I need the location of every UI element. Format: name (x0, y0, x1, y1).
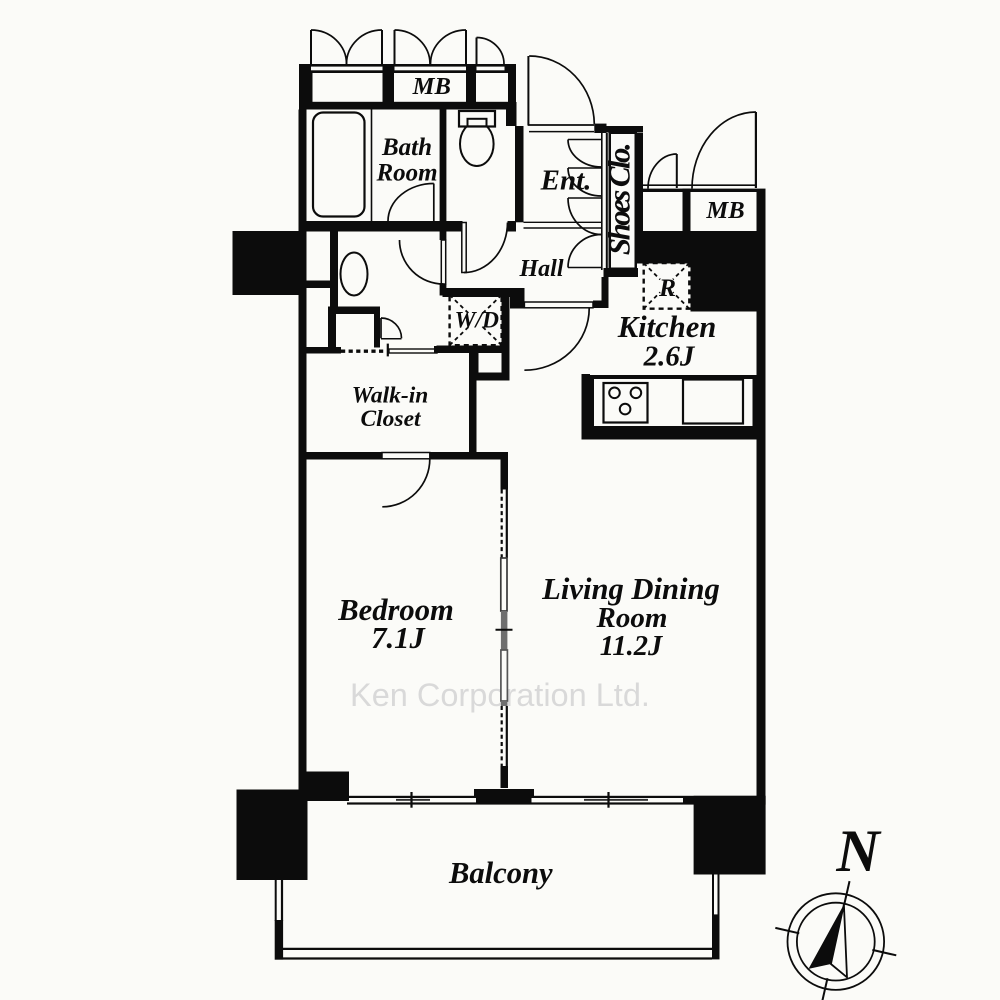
svg-text:Kitchen: Kitchen (617, 310, 717, 344)
svg-text:Bath: Bath (381, 134, 432, 161)
svg-text:Hall: Hall (518, 256, 563, 282)
svg-text:R: R (658, 273, 676, 302)
svg-text:Shoes Clo.: Shoes Clo. (602, 144, 637, 255)
svg-text:Room: Room (375, 160, 437, 187)
svg-text:Walk-in: Walk-in (352, 383, 429, 409)
svg-text:2.6J: 2.6J (643, 341, 696, 373)
svg-text:Ent.: Ent. (540, 165, 592, 197)
svg-text:7.1J: 7.1J (371, 621, 426, 655)
svg-text:Living Dining: Living Dining (541, 572, 720, 606)
svg-text:N: N (835, 818, 882, 884)
svg-text:Room: Room (596, 602, 668, 634)
svg-text:Balcony: Balcony (448, 856, 553, 890)
svg-text:11.2J: 11.2J (600, 631, 663, 662)
svg-text:MB: MB (412, 73, 451, 100)
svg-text:MB: MB (705, 197, 744, 224)
svg-text:Ken Corporation Ltd.: Ken Corporation Ltd. (350, 677, 650, 713)
svg-text:Closet: Closet (360, 406, 422, 432)
svg-text:W/D: W/D (455, 308, 499, 334)
